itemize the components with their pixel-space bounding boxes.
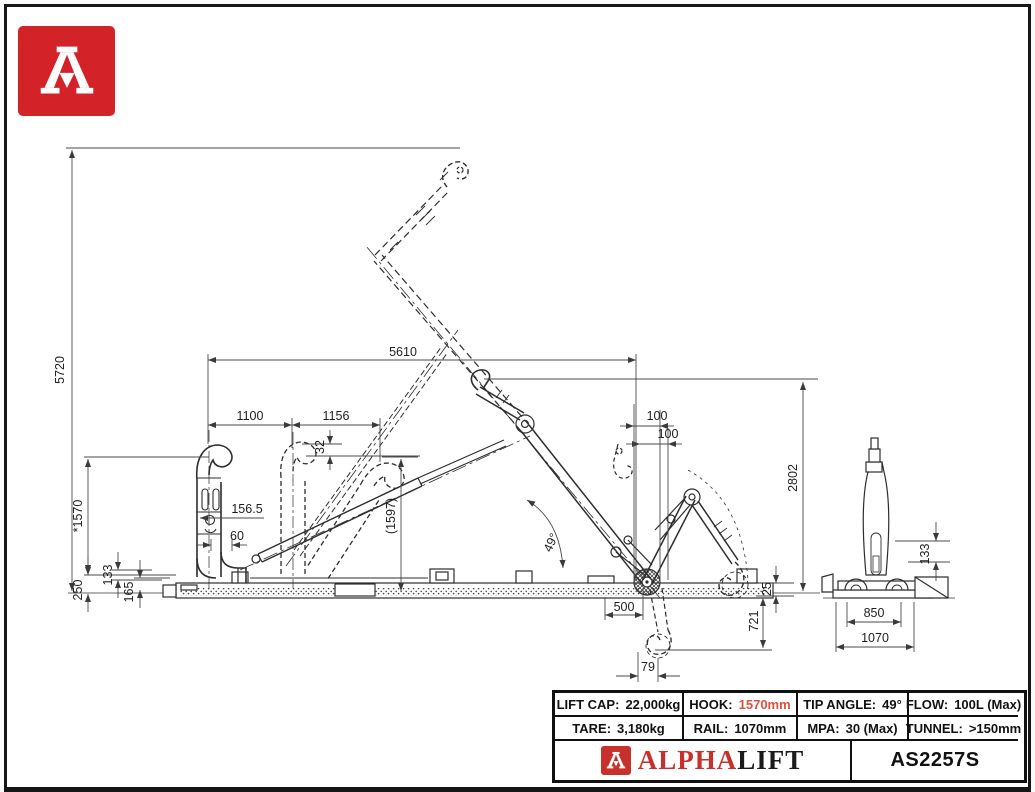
alpha-a-icon [605,750,627,771]
spec-hook: HOOK: 1570mm [684,693,798,717]
spec-tare-label: TARE: [572,721,611,736]
hooklift-technical-drawing: 5720 5610 1100 1156 32 100 100 2802 *157… [0,0,1035,700]
dim-tip-angle: 49° [541,531,562,554]
dim-overall-height: 5720 [53,356,67,384]
brand-cell: ALPHALIFT [555,741,852,780]
alphalift-footer-mark [601,746,631,775]
dim-1070: 1070 [861,631,889,645]
front-view [822,438,955,598]
brand-lift: LIFT [737,745,804,775]
spec-lift-cap-label: LIFT CAP: [557,697,620,712]
spec-mpa-label: MPA: [807,721,839,736]
brand-wordmark: ALPHALIFT [638,745,805,776]
dim-1100: 1100 [237,409,264,423]
dim-reach: 5610 [389,345,417,359]
spec-tunnel-value: >150mm [969,721,1021,736]
spec-flow: FLOW: 100L (Max) [909,693,1018,717]
spec-row-1: LIFT CAP: 22,000kg HOOK: 1570mm TIP ANGL… [555,693,1024,717]
spec-lift-cap: LIFT CAP: 22,000kg [555,693,684,717]
dim-133-left: 133 [101,565,115,586]
dim-500: 500 [614,600,635,614]
dim-165: 165 [122,582,136,603]
dim-60: 60 [230,529,244,543]
model-number: AS2257S [852,741,1018,780]
spec-tip-angle: TIP ANGLE: 49° [798,693,909,717]
spec-rail-value: 1070mm [734,721,786,736]
title-block: ALPHALIFT AS2257S [555,741,1024,780]
spec-mpa: MPA: 30 (Max) [798,717,909,741]
spec-hook-value: 1570mm [739,697,791,712]
spec-table: LIFT CAP: 22,000kg HOOK: 1570mm TIP ANGL… [552,690,1027,783]
dim-100a: 100 [647,409,668,423]
dim-1156: 1156 [323,409,350,423]
dim-2802: 2802 [786,464,800,492]
spec-tunnel: TUNNEL: >150mm [909,717,1018,741]
dim-25: 25 [760,582,774,596]
dimension-lines [66,148,950,682]
dim-1597: (1597) [384,498,398,534]
side-view [68,162,820,658]
spec-rail-label: RAIL: [694,721,729,736]
drawing-sheet: { "page": { "paper_color": "#ffffff", "b… [0,0,1035,792]
spec-tunnel-label: TUNNEL: [906,721,963,736]
dim-721: 721 [747,611,761,632]
spec-rail: RAIL: 1070mm [684,717,798,741]
spec-tare: TARE: 3,180kg [555,717,684,741]
spec-hook-label: HOOK: [689,697,732,712]
dim-79: 79 [641,660,655,674]
spec-tip-angle-value: 49° [882,697,902,712]
brand-alpha: ALPHA [638,745,738,775]
spec-flow-label: FLOW: [906,697,948,712]
dim-32: 32 [313,440,327,454]
dim-1570: *1570 [71,500,85,533]
spec-mpa-value: 30 (Max) [846,721,898,736]
spec-lift-cap-value: 22,000kg [625,697,680,712]
spec-flow-value: 100L (Max) [954,697,1021,712]
spec-tare-value: 3,180kg [617,721,665,736]
dim-100b: 100 [658,427,679,441]
dim-250: 250 [71,580,85,601]
spec-row-2: TARE: 3,180kg RAIL: 1070mm MPA: 30 (Max)… [555,717,1024,741]
dim-156-5: 156.5 [231,502,262,516]
spec-tip-angle-label: TIP ANGLE: [803,697,876,712]
dim-850: 850 [864,606,885,620]
dim-133-front: 133 [918,544,932,565]
